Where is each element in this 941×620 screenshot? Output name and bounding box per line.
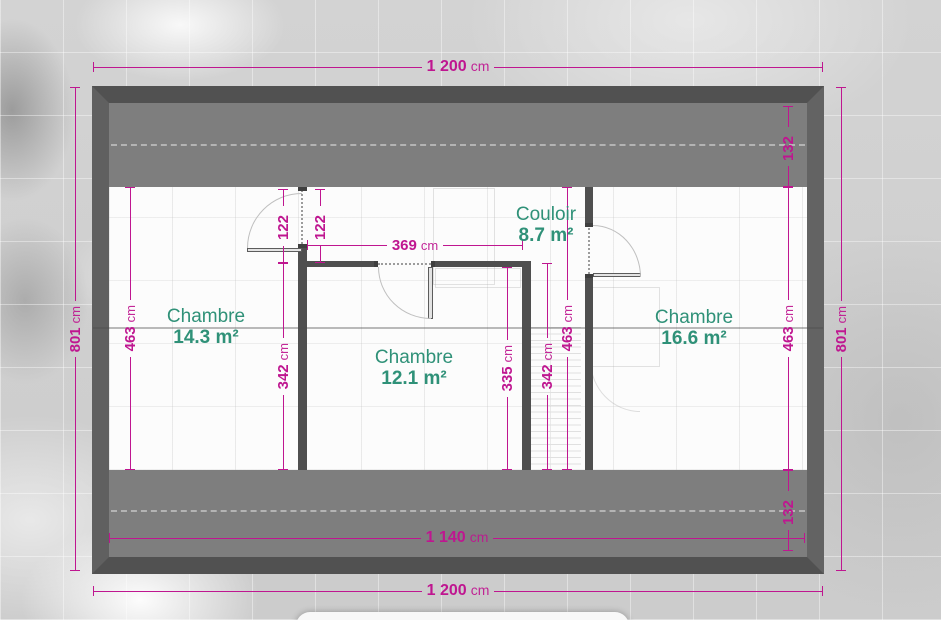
wall-stair-left[interactable]	[522, 261, 531, 470]
roof-dash-line-bottom	[111, 510, 805, 512]
roof-slope-band-top[interactable]	[109, 103, 807, 187]
door-frame-cap	[585, 274, 593, 278]
dimension-inner-width: 1 140cm	[109, 532, 805, 544]
wall-left-bedroom[interactable]	[298, 248, 307, 470]
wall-right-bedroom[interactable]	[585, 278, 593, 470]
dimension-bottom-eave-depth: 132	[782, 470, 794, 551]
dimension-right-door-offset: 122	[314, 189, 326, 263]
door-frame-cap	[298, 187, 307, 191]
dimension-top-eave-depth: 132	[782, 106, 794, 187]
dimension-right-room-depth: 463cm	[782, 187, 794, 470]
floor-plan-canvas: 1 200cm 369cm 1 140cm 1 200cm 801cm 463c…	[0, 0, 941, 620]
dimension-room2-inner-depth: 335cm	[501, 267, 513, 470]
room-label-couloir[interactable]: Couloir 8.7 m²	[466, 204, 626, 246]
room-label-chambre-left[interactable]: Chambre 14.3 m²	[126, 306, 286, 348]
bottom-toolbar-panel[interactable]	[296, 612, 629, 620]
wall-middle-bedroom-top[interactable]	[298, 261, 378, 267]
dimension-left-door-offset: 122	[277, 189, 289, 263]
dimension-left-height: 801cm	[69, 87, 81, 571]
room-label-chambre-middle[interactable]: Chambre 12.1 m²	[334, 347, 494, 389]
door-opening-middle	[378, 263, 431, 265]
dimension-top-width: 1 200cm	[93, 61, 823, 73]
roof-dash-line-top	[111, 144, 805, 146]
dimension-left-lower-depth: 342cm	[277, 263, 289, 470]
wall-middle-bedroom-top[interactable]	[431, 261, 530, 267]
room-label-chambre-right[interactable]: Chambre 16.6 m²	[614, 307, 774, 349]
dimension-right-height: 801cm	[835, 87, 847, 571]
dimension-bottom-width: 1 200cm	[93, 585, 823, 597]
dimension-stair-depth: 342cm	[541, 263, 553, 470]
door-leaf-left-bedroom[interactable]	[247, 248, 302, 252]
